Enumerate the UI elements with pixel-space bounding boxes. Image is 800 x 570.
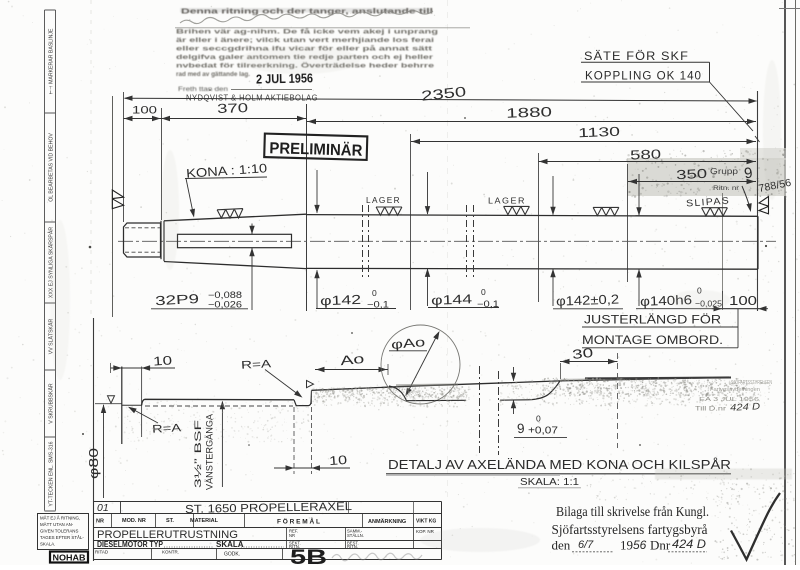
svg-text:RITAD: RITAD [95,550,109,555]
svg-text:F Ö R E M Å L: F Ö R E M Å L [277,517,320,526]
svg-text:9: 9 [517,421,526,436]
svg-text:GODK.: GODK. [224,552,240,558]
svg-text:SKALA.: SKALA. [40,542,55,547]
svg-text:Grupp: Grupp [710,167,739,176]
svg-text:424 D: 424 D [730,401,761,414]
svg-text:φ144: φ144 [431,291,472,307]
svg-text:30: 30 [571,345,593,362]
svg-text:MOD. NR: MOD. NR [122,518,146,524]
svg-text:Ritn. nr: Ritn. nr [713,185,740,192]
svg-text:φAo: φAo [391,335,426,352]
svg-text:SKALA: 1:1: SKALA: 1:1 [520,476,579,488]
svg-text:PRELIMINÄR: PRELIMINÄR [269,139,363,160]
svg-text:LAGER: LAGER [366,196,401,205]
svg-text:VIKT KG: VIKT KG [416,519,436,525]
svg-text:100: 100 [729,293,757,308]
svg-text:19: 19 [620,538,633,553]
svg-text:φ142: φ142 [320,292,361,308]
svg-text:100: 100 [132,105,157,117]
svg-text:Sjöfartsstyrelsens fartygsbyr: Sjöfartsstyrelsens fartygsbyrå [552,522,708,537]
svg-text:580: 580 [630,146,662,162]
svg-text:Ao: Ao [339,351,364,368]
svg-text:RITN.: RITN. [347,544,358,549]
svg-text:Till D.nr: Till D.nr [695,406,726,413]
svg-text:TAGES EFTER STÅL-: TAGES EFTER STÅL- [40,535,84,540]
svg-text:KOPPLING OK 140: KOPPLING OK 140 [585,71,702,83]
svg-text:1880: 1880 [506,104,552,121]
svg-text:6/7: 6/7 [578,539,594,551]
svg-text:424 D: 424 D [672,537,706,551]
svg-text:den: den [552,538,571,553]
svg-text:NOHAB: NOHAB [53,553,86,563]
svg-text:0: 0 [372,288,377,298]
svg-text:⊢⊣ MARKERAR BASLINJE: ⊢⊣ MARKERAR BASLINJE [47,28,54,94]
svg-text:φ142±0,2: φ142±0,2 [556,291,619,308]
svg-text:JUSTERLÄNGD FÖR: JUSTERLÄNGD FÖR [584,313,721,327]
svg-text:0: 0 [481,287,486,297]
svg-text:ST.: ST. [166,518,174,524]
svg-text:0: 0 [536,414,541,424]
svg-text:MATERIAL: MATERIAL [190,518,219,524]
svg-text:NYDQVIST & HOLM AKTIEBOLAG: NYDQVIST & HOLM AKTIEBOLAG [186,94,318,103]
svg-text:MÄTT UTAN AN-: MÄTT UTAN AN- [40,522,74,527]
svg-text:SKALA: SKALA [216,540,244,549]
svg-text:1130: 1130 [578,124,620,140]
svg-text:STÄLLN.: STÄLLN. [347,533,364,538]
svg-text:φ80: φ80 [86,448,101,479]
svg-text:rad med av gättande lag.: rad med av gättande lag. [176,71,250,78]
svg-text:VÄNSTERGÄNGA: VÄNSTERGÄNGA [205,413,216,490]
svg-text:ANMÄRKNING: ANMÄRKNING [368,518,406,525]
svg-text:GIVEN TOLERANS: GIVEN TOLERANS [40,529,78,534]
svg-text:MONTAGE OMBORD.: MONTAGE OMBORD. [582,333,723,347]
svg-text:Dnr: Dnr [650,538,671,553]
svg-text:Brihen vär ag-nihm. De få ick: Brihen vär ag-nihm. De få icke vem akej … [176,28,438,36]
svg-text:Bilaga till skrivelse från Kun: Bilaga till skrivelse från Kungl. [556,504,709,519]
svg-text:NR: NR [289,533,295,538]
svg-text:är eller i änere; vilck utan v: är eller i änere; vilck utan vert merhji… [176,37,434,44]
svg-text:10: 10 [153,353,173,368]
svg-text:Freth ttan den: Freth ttan den [178,86,229,93]
svg-text:V SKRUBBSKÄR: V SKRUBBSKÄR [47,383,54,424]
svg-text:R=A: R=A [241,358,272,372]
svg-text:350: 350 [676,166,708,183]
svg-text:YT-TECKEN ENL. SMS-316: YT-TECKEN ENL. SMS-316 [48,441,54,506]
svg-text:370: 370 [217,100,249,116]
svg-text:01: 01 [97,502,109,514]
svg-text:−0,026: −0,026 [208,300,242,310]
svg-text:32P9: 32P9 [155,291,200,308]
svg-text:LAGER: LAGER [488,197,526,206]
svg-text:OL BEARBETAS VID BEHOV: OL BEARBETAS VID BEHOV [48,133,54,202]
svg-text:SÄTE FÖR SKF: SÄTE FÖR SKF [584,51,689,63]
svg-text:−0,1: −0,1 [367,300,389,310]
svg-text:MÅT EJ Å RITNING,: MÅT EJ Å RITNING, [40,516,80,521]
svg-text:KONTR.: KONTR. [162,550,179,555]
svg-text:+0,07: +0,07 [528,426,559,437]
svg-text:−0,088: −0,088 [208,290,242,300]
svg-text:3½” BSF: 3½” BSF [193,420,204,488]
svg-text:10: 10 [329,453,348,468]
svg-text:5B: 5B [290,546,327,565]
svg-text:NR: NR [96,519,104,525]
svg-text:56: 56 [633,538,647,552]
svg-text:DIESELMOTOR TYP: DIESELMOTOR TYP [97,540,164,549]
